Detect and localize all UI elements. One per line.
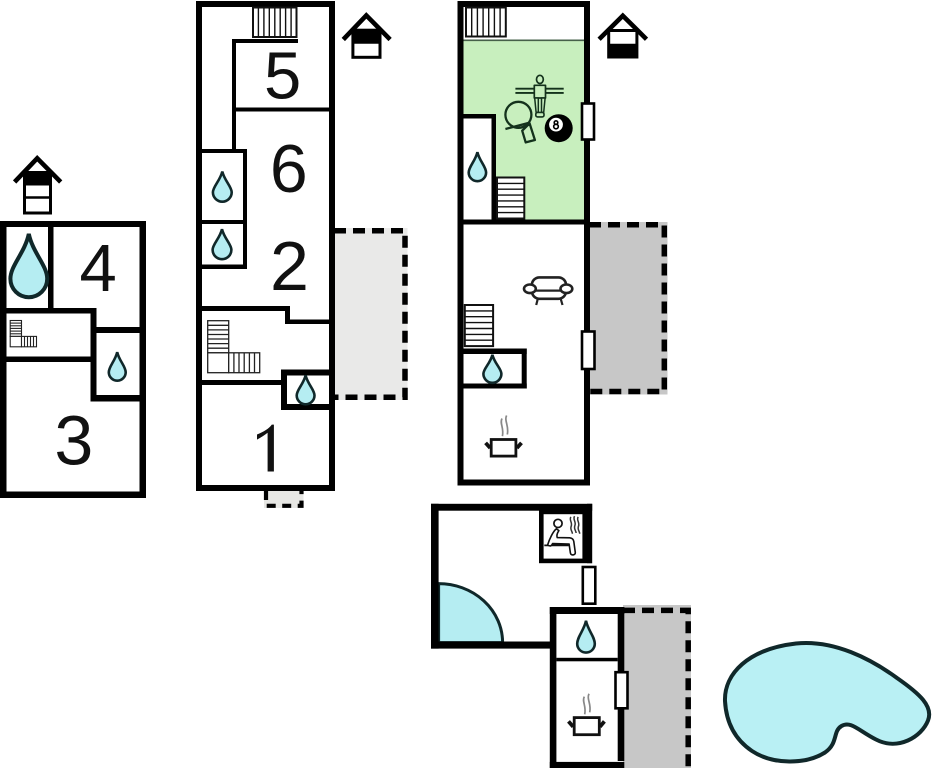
svg-text:5: 5 [264,38,301,113]
svg-text:2: 2 [270,227,309,305]
svg-text:6: 6 [270,131,308,207]
svg-text:3: 3 [54,402,93,480]
svg-text:4: 4 [79,231,116,306]
